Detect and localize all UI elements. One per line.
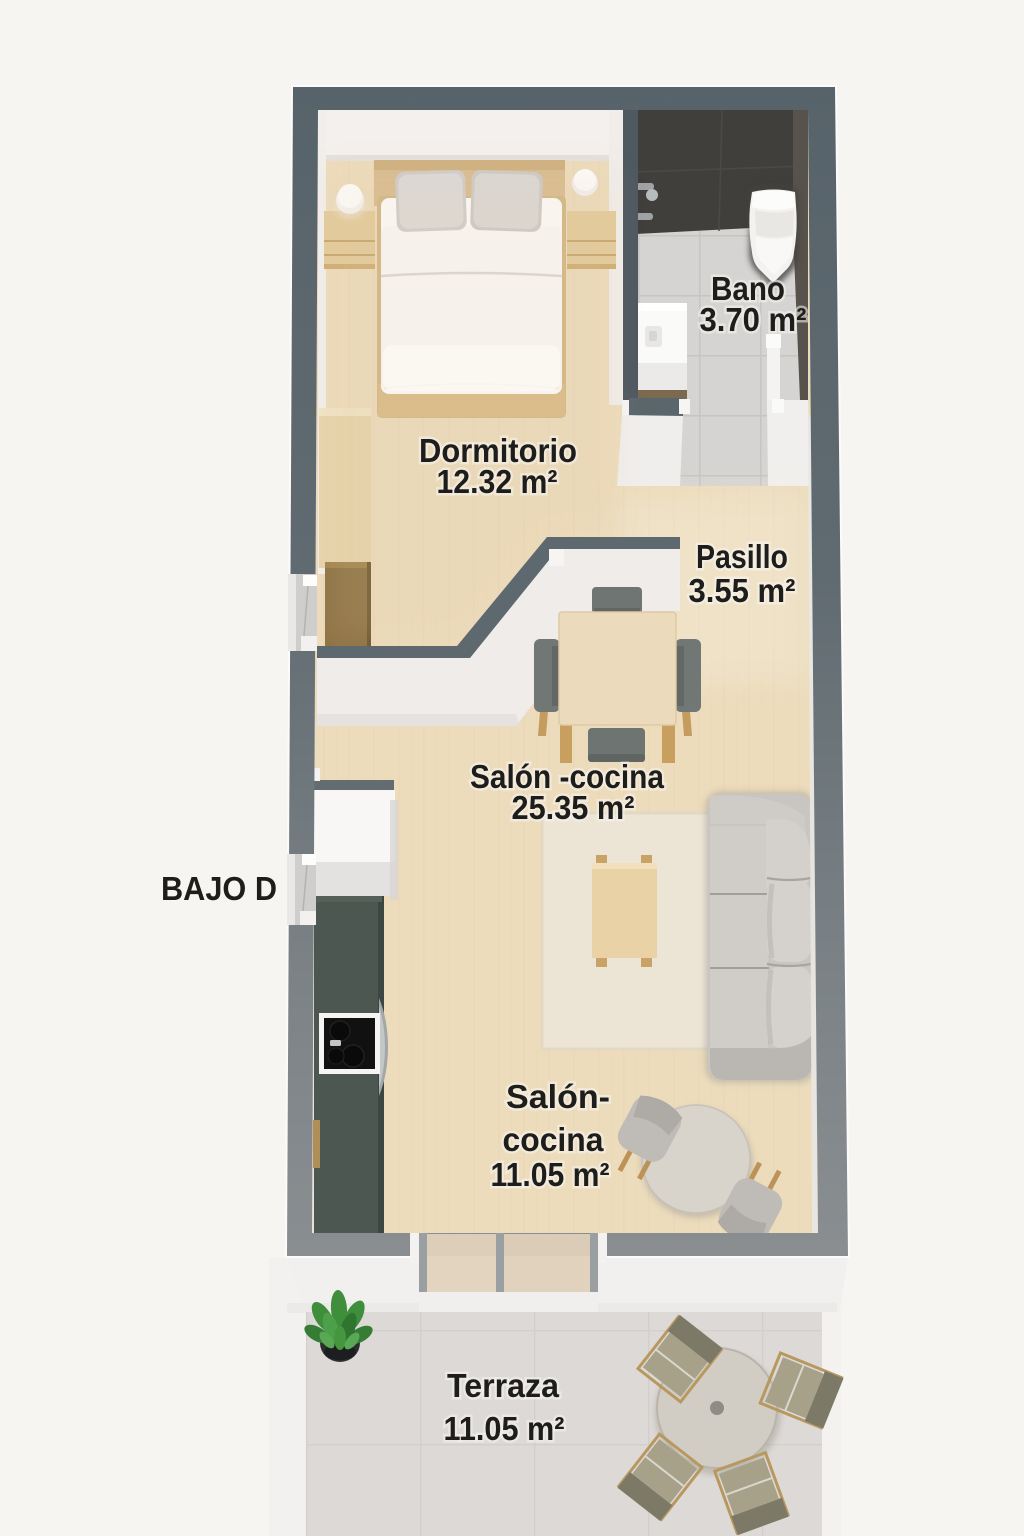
svg-text:3.70 m²: 3.70 m² [700, 301, 807, 338]
svg-text:BAJO D: BAJO D [161, 870, 277, 907]
svg-text:Salón-: Salón- [506, 1078, 610, 1115]
svg-text:12.32 m²: 12.32 m² [437, 463, 558, 500]
svg-text:3.55 m²: 3.55 m² [689, 572, 796, 609]
svg-text:cocina: cocina [503, 1121, 605, 1158]
svg-text:Pasillo: Pasillo [696, 538, 788, 575]
svg-text:Terraza: Terraza [447, 1367, 560, 1404]
svg-text:11.05 m²: 11.05 m² [491, 1156, 610, 1193]
svg-text:11.05 m²: 11.05 m² [444, 1410, 565, 1447]
svg-text:25.35 m²: 25.35 m² [512, 789, 635, 826]
